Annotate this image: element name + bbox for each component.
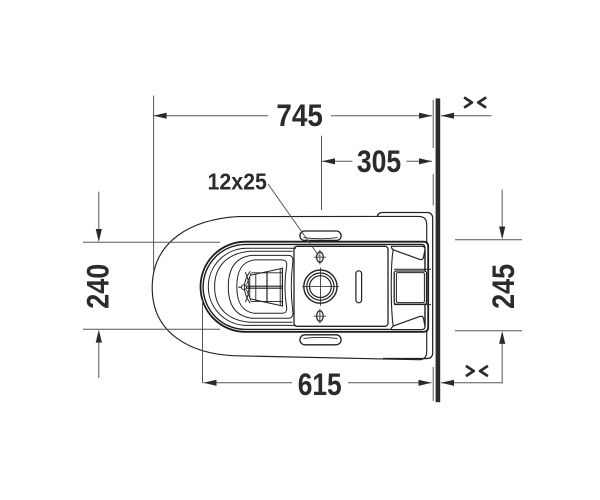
svg-text:12x25: 12x25	[207, 169, 267, 195]
svg-text:745: 745	[276, 97, 322, 133]
svg-text:245: 245	[485, 264, 521, 309]
svg-text:305: 305	[357, 143, 401, 179]
svg-text:240: 240	[79, 264, 115, 309]
svg-text:615: 615	[298, 366, 342, 402]
